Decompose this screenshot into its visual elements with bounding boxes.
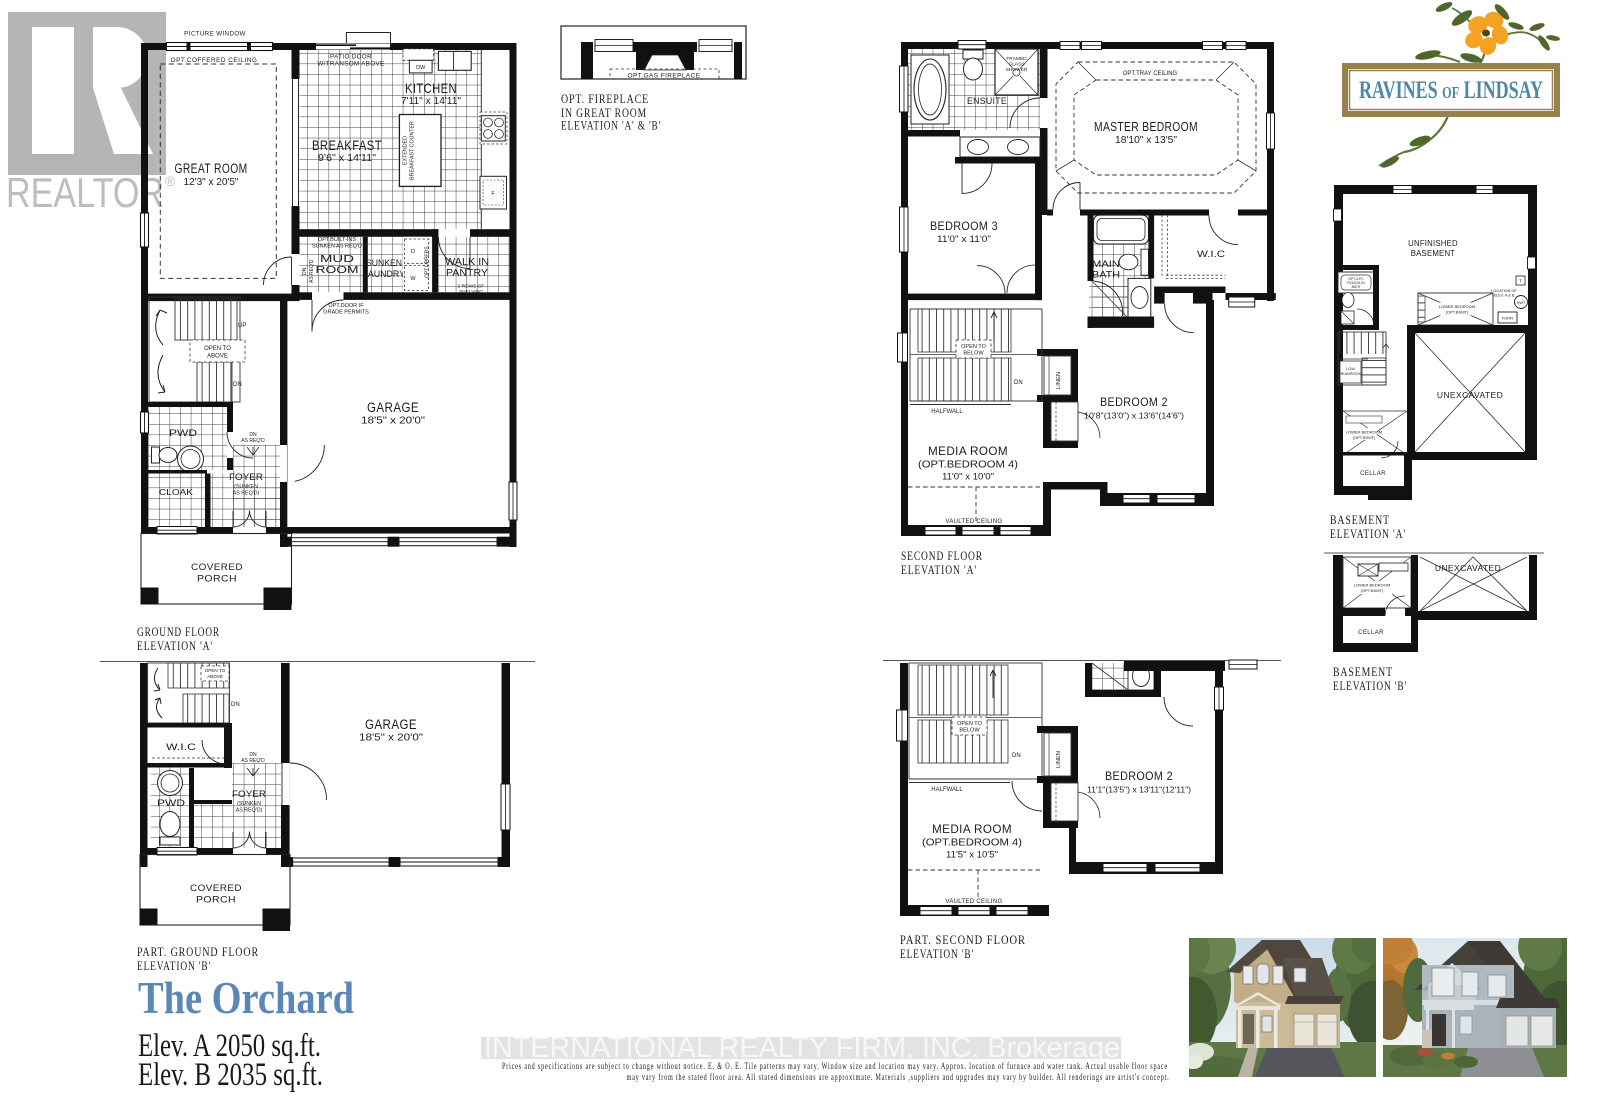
svg-text:PART. GROUND FLOOR: PART. GROUND FLOOR	[137, 944, 259, 959]
svg-text:(SUNKEN: (SUNKEN	[237, 801, 261, 807]
svg-text:ELEVATION 'B': ELEVATION 'B'	[900, 946, 974, 961]
svg-text:FURN: FURN	[1502, 316, 1513, 321]
svg-text:SUNKEN AS REQ'D: SUNKEN AS REQ'D	[312, 244, 362, 250]
svg-text:DN: DN	[302, 267, 308, 275]
svg-text:DN: DN	[1014, 380, 1023, 386]
svg-text:FRAMED: FRAMED	[1006, 56, 1027, 62]
svg-text:PWD: PWD	[157, 798, 185, 809]
svg-text:BASEMENT: BASEMENT	[1411, 249, 1456, 258]
svg-text:SECOND FLOOR: SECOND FLOOR	[901, 548, 983, 563]
svg-text:COVERED: COVERED	[190, 883, 242, 894]
svg-text:HALFWALL: HALFWALL	[931, 787, 963, 793]
svg-text:PATIO DOOR: PATIO DOOR	[330, 54, 372, 61]
svg-text:INTERNATIONAL REALTY FIRM, IN: INTERNATIONAL REALTY FIRM, INC. Brokerag…	[484, 1032, 1120, 1064]
svg-text:PORCH: PORCH	[196, 895, 236, 906]
svg-text:GARAGE: GARAGE	[365, 717, 417, 732]
svg-text:W: W	[410, 276, 416, 282]
svg-text:ELEV. A & B: ELEV. A & B	[1494, 294, 1515, 298]
svg-text:OPT.UPPERS: OPT.UPPERS	[425, 246, 431, 278]
svg-text:PWD: PWD	[169, 428, 197, 439]
svg-text:OPT. FIREPLACE: OPT. FIREPLACE	[561, 91, 649, 106]
svg-text:CLOAK: CLOAK	[159, 487, 193, 497]
svg-text:(OPT.BSMT): (OPT.BSMT)	[1446, 310, 1469, 315]
svg-text:ELEVATION 'A': ELEVATION 'A'	[137, 638, 213, 653]
svg-text:11'1"(13'5") x 13'11"(12'11"): 11'1"(13'5") x 13'11"(12'11")	[1087, 785, 1191, 795]
svg-text:7'11" x 14'11": 7'11" x 14'11"	[401, 95, 461, 107]
svg-text:(OPT.BEDROOM 4): (OPT.BEDROOM 4)	[918, 459, 1018, 471]
svg-text:UNEXCAVATED: UNEXCAVATED	[1435, 563, 1501, 573]
svg-text:AS REQ'D: AS REQ'D	[241, 758, 265, 764]
svg-text:CELLAR: CELLAR	[1360, 471, 1386, 477]
svg-text:LOCATION OF: LOCATION OF	[1491, 289, 1517, 293]
svg-text:LOWER BEDROOM: LOWER BEDROOM	[1439, 304, 1475, 309]
svg-text:may vary from the stated floor: may vary from the stated floor area. All…	[627, 1072, 1170, 1082]
svg-text:LINEN: LINEN	[1056, 751, 1062, 768]
svg-text:GARAGE: GARAGE	[367, 400, 419, 415]
svg-text:UP: UP	[238, 323, 246, 329]
svg-text:ROOM: ROOM	[316, 264, 359, 276]
svg-text:EXTENDED: EXTENDED	[403, 136, 409, 165]
svg-text:T: T	[1519, 279, 1522, 284]
svg-text:MEDIA ROOM: MEDIA ROOM	[932, 824, 1012, 836]
svg-text:FOYER: FOYER	[229, 472, 264, 482]
svg-text:11'5" x 10'5": 11'5" x 10'5"	[946, 850, 998, 861]
svg-text:ELEVATION 'A': ELEVATION 'A'	[1330, 526, 1406, 541]
svg-text:DN: DN	[1012, 753, 1021, 759]
svg-text:12'3" x 20'5": 12'3" x 20'5"	[184, 176, 239, 188]
svg-text:10'8"(13'0") x 13'6"(14'6"): 10'8"(13'0") x 13'6"(14'6")	[1084, 411, 1184, 421]
svg-text:LOWER BEDROOM: LOWER BEDROOM	[1354, 583, 1390, 588]
svg-text:18'10" x 13'5": 18'10" x 13'5"	[1115, 135, 1177, 146]
svg-text:18'5" x 20'0": 18'5" x 20'0"	[361, 415, 425, 427]
svg-text:OPT.BUILT-INS: OPT.BUILT-INS	[318, 237, 356, 243]
svg-text:LOW: LOW	[1346, 367, 1355, 371]
svg-text:UNFINISHED: UNFINISHED	[1408, 239, 1458, 248]
svg-text:LOWER BEDROOM: LOWER BEDROOM	[1346, 430, 1382, 435]
svg-text:LINEN: LINEN	[1056, 372, 1062, 389]
svg-text:LAUNDRY: LAUNDRY	[363, 269, 406, 280]
svg-text:OPEN TO: OPEN TO	[961, 344, 987, 350]
svg-text:MASTER BEDROOM: MASTER BEDROOM	[1094, 120, 1198, 134]
svg-text:(OPT.BSMT): (OPT.BSMT)	[1361, 588, 1384, 593]
svg-text:AS REQ'D): AS REQ'D)	[236, 808, 263, 814]
svg-text:REALTOR: REALTOR	[6, 169, 164, 216]
svg-text:BREAKFAST COUNTER: BREAKFAST COUNTER	[410, 121, 416, 180]
svg-text:OPT.TRAY CEILING: OPT.TRAY CEILING	[1123, 71, 1178, 77]
svg-text:SUNKEN: SUNKEN	[366, 258, 402, 269]
svg-text:BELOW: BELOW	[959, 728, 980, 734]
svg-text:OPT.COFFERED CEILING: OPT.COFFERED CEILING	[171, 57, 258, 64]
svg-text:OPEN TO: OPEN TO	[204, 346, 231, 352]
svg-text:PORCH: PORCH	[197, 574, 237, 585]
svg-text:PANTRY: PANTRY	[446, 268, 488, 279]
svg-text:BASEMENT: BASEMENT	[1333, 664, 1393, 679]
svg-text:ENSUITE: ENSUITE	[967, 96, 1007, 107]
svg-text:GROUND FLOOR: GROUND FLOOR	[137, 624, 220, 639]
svg-text:11'0" x 10'0": 11'0" x 10'0"	[942, 472, 994, 483]
svg-text:ELEVATION 'A' & 'B': ELEVATION 'A' & 'B'	[561, 118, 661, 133]
svg-text:VAULTED CEILING: VAULTED CEILING	[946, 899, 1003, 905]
svg-text:BATH: BATH	[1352, 285, 1361, 289]
svg-text:KITCHEN: KITCHEN	[405, 81, 457, 96]
svg-text:CELLAR: CELLAR	[1358, 630, 1384, 636]
svg-text:BATH: BATH	[1092, 270, 1120, 280]
svg-text:ELEVATION 'B': ELEVATION 'B'	[137, 958, 211, 973]
svg-text:BEDROOM 3: BEDROOM 3	[930, 221, 998, 233]
svg-text:SHOWER: SHOWER	[1006, 67, 1028, 73]
svg-text:PICTURE WINDOW: PICTURE WINDOW	[184, 31, 246, 38]
svg-text:GRADE PERMITS: GRADE PERMITS	[323, 310, 369, 316]
svg-text:MEDIA ROOM: MEDIA ROOM	[928, 446, 1008, 458]
svg-text:ABOVE: ABOVE	[207, 674, 223, 679]
svg-text:GREAT ROOM: GREAT ROOM	[175, 161, 248, 176]
svg-text:BEDROOM 2: BEDROOM 2	[1105, 771, 1173, 783]
svg-text:(SUNKEN: (SUNKEN	[234, 484, 258, 490]
svg-text:OPEN TO: OPEN TO	[957, 721, 983, 727]
svg-text:W.I.C: W.I.C	[1197, 249, 1225, 260]
svg-text:OPEN TO: OPEN TO	[205, 668, 226, 673]
svg-text:BREAKFAST: BREAKFAST	[312, 138, 382, 153]
svg-text:PART. SECOND FLOOR: PART. SECOND FLOOR	[900, 932, 1026, 947]
svg-text:BASEMENT: BASEMENT	[1330, 512, 1390, 527]
svg-text:ELEVATION 'A': ELEVATION 'A'	[901, 562, 977, 577]
svg-text:FOYER: FOYER	[232, 789, 267, 799]
svg-text:HALFWALL: HALFWALL	[931, 409, 963, 415]
svg-text:BELOW: BELOW	[963, 351, 984, 357]
svg-text:WALK IN: WALK IN	[445, 257, 489, 268]
svg-text:11'0" x 11'0": 11'0" x 11'0"	[937, 234, 991, 245]
svg-text:UNEXCAVATED: UNEXCAVATED	[1437, 390, 1503, 400]
svg-text:2 ROWS OF: 2 ROWS OF	[458, 284, 485, 290]
svg-text:D: D	[411, 249, 415, 255]
svg-text:DW: DW	[416, 65, 426, 71]
svg-text:HWT: HWT	[1517, 301, 1526, 305]
svg-text:HEADROOM: HEADROOM	[1339, 372, 1361, 376]
svg-text:ABOVE: ABOVE	[207, 354, 228, 360]
svg-text:GLASS: GLASS	[1009, 62, 1025, 68]
svg-text:The Orchard: The Orchard	[138, 973, 354, 1023]
svg-text:MAIN: MAIN	[1092, 259, 1120, 269]
svg-text:AS REQ'D: AS REQ'D	[309, 259, 315, 283]
svg-text:DN: DN	[231, 702, 240, 708]
svg-text:COVERED: COVERED	[191, 562, 243, 573]
svg-text:DN: DN	[233, 382, 242, 388]
svg-text:OPT.DOOR IF: OPT.DOOR IF	[328, 303, 364, 309]
svg-text:AS REQ'D): AS REQ'D)	[233, 491, 260, 497]
svg-text:W.I.C: W.I.C	[166, 742, 196, 753]
svg-text:ELEVATION 'B': ELEVATION 'B'	[1333, 678, 1407, 693]
svg-text:W/TRANSOM ABOVE: W/TRANSOM ABOVE	[317, 61, 384, 68]
svg-text:VAULTED CEILING: VAULTED CEILING	[946, 519, 1003, 525]
svg-text:18'5" x 20'0": 18'5" x 20'0"	[359, 732, 423, 744]
svg-text:Prices and specifications are: Prices and specifications are subject to…	[502, 1061, 1168, 1071]
svg-text:9'6" x 14'11": 9'6" x 14'11"	[318, 152, 376, 164]
svg-text:(OPT.BSMT): (OPT.BSMT)	[1353, 435, 1376, 440]
svg-text:(OPT.BEDROOM 4): (OPT.BEDROOM 4)	[922, 837, 1022, 849]
svg-text:OPT.GAS FIREPLACE: OPT.GAS FIREPLACE	[628, 73, 701, 80]
svg-text:BEDROOM 2: BEDROOM 2	[1100, 397, 1168, 409]
svg-text:Elev. B 2035 sq.ft.: Elev. B 2035 sq.ft.	[138, 1057, 323, 1093]
svg-text:AS REQ'D: AS REQ'D	[241, 438, 265, 444]
